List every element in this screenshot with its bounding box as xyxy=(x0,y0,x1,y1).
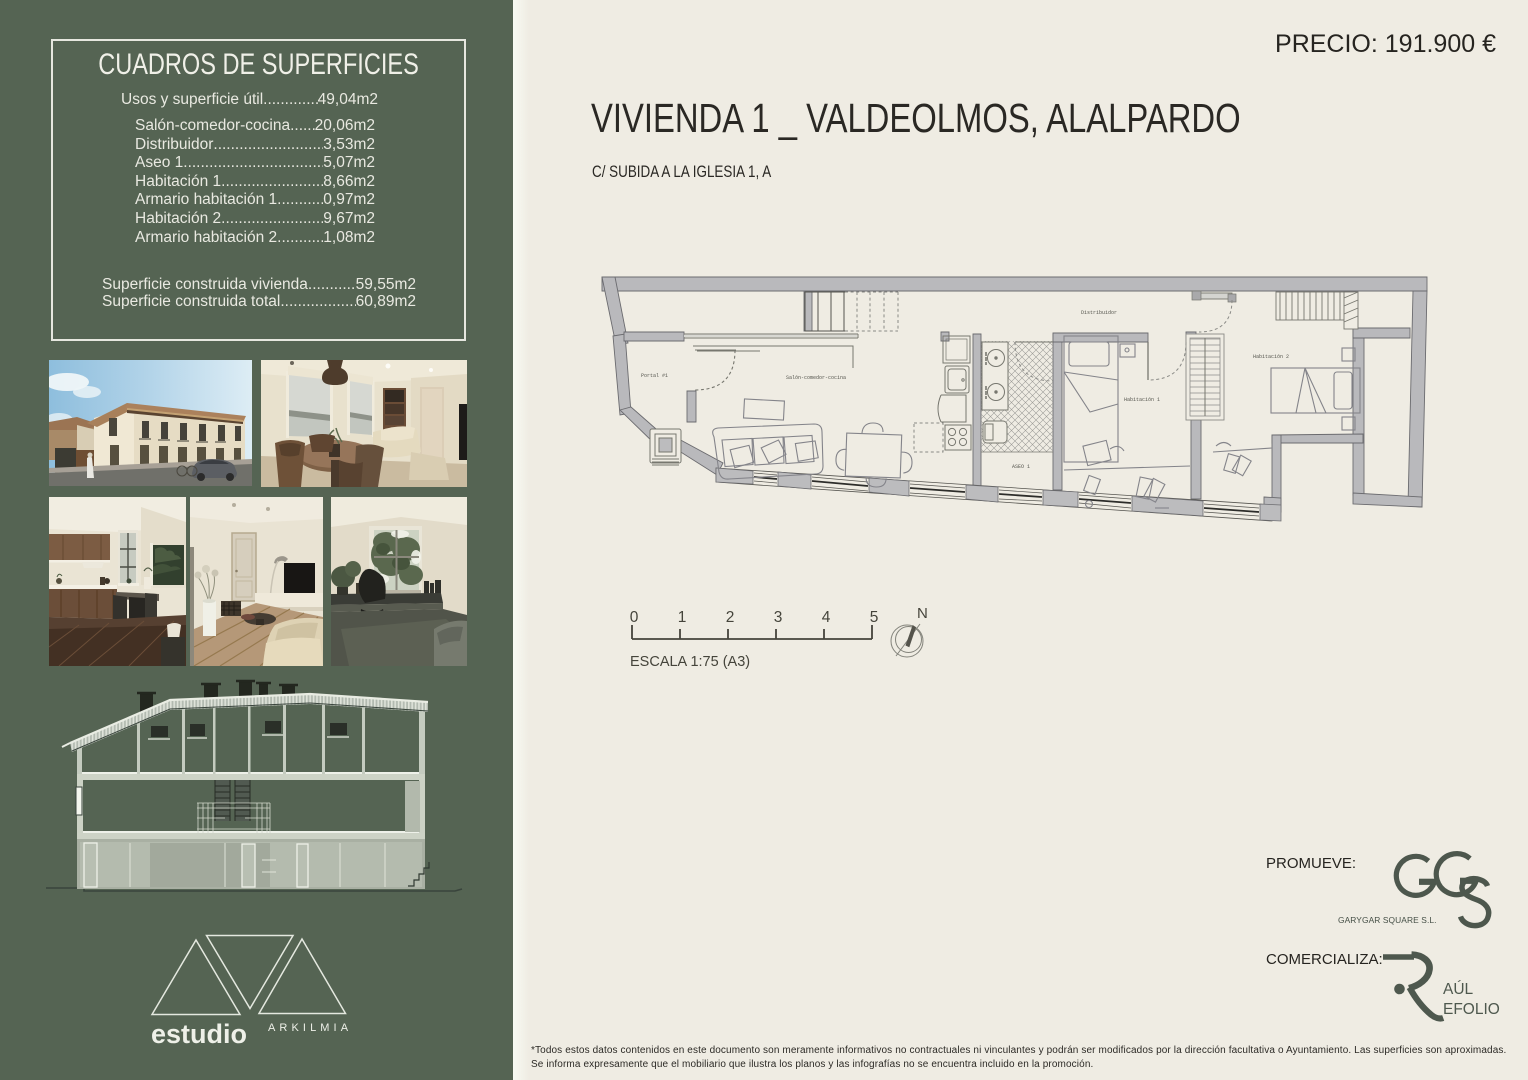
svg-text:5: 5 xyxy=(870,609,879,626)
svg-text:1: 1 xyxy=(678,609,687,626)
svg-text:estudio: estudio xyxy=(151,1019,247,1049)
svg-text:Salón-comedor-cocina: Salón-comedor-cocina xyxy=(786,375,846,381)
svg-text:2: 2 xyxy=(726,609,735,626)
svg-text:Habitación 2: Habitación 2 xyxy=(1253,354,1289,360)
svg-text:0: 0 xyxy=(630,609,639,626)
svg-text:Distribuidor: Distribuidor xyxy=(1081,310,1117,316)
svg-text:ASEO 1: ASEO 1 xyxy=(1012,464,1030,470)
svg-text:N: N xyxy=(917,605,928,622)
svg-text:3: 3 xyxy=(774,609,783,626)
svg-text:4: 4 xyxy=(822,609,831,626)
svg-text:Habitación 1: Habitación 1 xyxy=(1124,397,1160,403)
svg-text:ARKILMIA: ARKILMIA xyxy=(268,1022,352,1034)
svg-text:Portal #1: Portal #1 xyxy=(641,373,668,379)
